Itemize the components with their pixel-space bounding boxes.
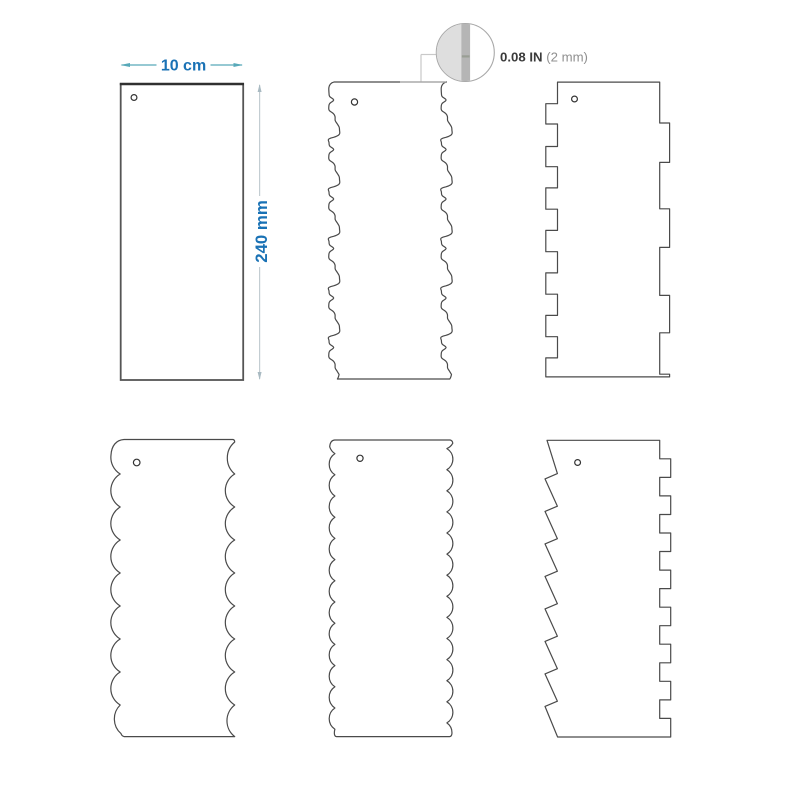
svg-text:240 mm: 240 mm [252, 200, 271, 263]
svg-text:0.08 IN (2 mm): 0.08 IN (2 mm) [500, 50, 588, 65]
svg-text:10 cm: 10 cm [161, 58, 206, 75]
